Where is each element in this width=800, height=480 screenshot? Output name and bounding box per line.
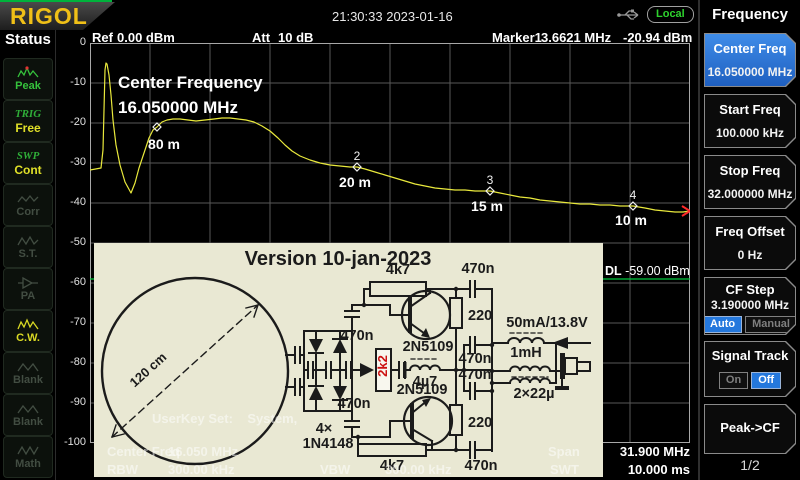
- blank-waveform-icon: [17, 360, 39, 373]
- st-waveform-icon: [17, 234, 39, 247]
- freq-offset-button[interactable]: Freq Offset 0 Hz: [704, 216, 796, 270]
- r220-bottom-label: 220: [468, 415, 492, 431]
- supply-label: 50mA/13.8V: [506, 315, 588, 331]
- status-title: Status: [5, 31, 51, 48]
- button-label: Freq Offset: [705, 217, 795, 239]
- cap-label-5: 470n: [458, 367, 491, 383]
- footer-cf-value: 16.050 MHz: [168, 444, 238, 459]
- cap-label-6: 470n: [464, 458, 497, 474]
- status-item-blank2: Blank: [3, 394, 53, 436]
- status-item-corr: Corr: [3, 184, 53, 226]
- status-item-cw: C.W.: [3, 310, 53, 352]
- svg-text:80 m: 80 m: [148, 136, 180, 152]
- center-freq-button[interactable]: Center Freq 16.050000 MHz: [704, 33, 796, 87]
- y-axis-tick: 0: [55, 36, 86, 48]
- cw-waveform-icon: [17, 318, 39, 331]
- peak-waveform-icon: [17, 66, 39, 79]
- top-green-strip: [0, 0, 112, 2]
- top-bar: RIGOL 21:30:33 2023-01-16 Local: [0, 0, 698, 30]
- y-axis-tick: -10: [55, 76, 86, 88]
- r220-top-label: 220: [468, 308, 492, 324]
- signal-track-on-toggle[interactable]: On: [719, 372, 748, 389]
- softkey-menu: Frequency Center Freq 16.050000 MHz Star…: [698, 0, 800, 480]
- button-label: Peak->CF: [705, 405, 795, 451]
- menu-page-indicator: 1/2: [700, 457, 800, 473]
- attenuation-value: 10 dB: [278, 30, 313, 45]
- cf-step-manual-toggle[interactable]: Manual: [745, 316, 797, 333]
- l22u-label: 2×22µ: [513, 386, 554, 402]
- status-item-sweep: SWP Cont: [3, 142, 53, 184]
- marker-readout-amp: -20.94 dBm: [623, 30, 692, 45]
- status-item-trigger: TRIG Free: [3, 100, 53, 142]
- menu-title: Frequency: [700, 6, 800, 23]
- status-sidebar: Status Peak TRIG Free SWP Cont Corr S.T.…: [0, 0, 56, 480]
- svg-text:15 m: 15 m: [471, 198, 503, 214]
- button-value: 16.050000 MHz: [705, 56, 795, 79]
- y-axis-tick: -60: [55, 276, 86, 288]
- peak-to-cf-button[interactable]: Peak->CF: [704, 404, 796, 454]
- status-item-label: Blank: [13, 416, 43, 428]
- status-item-peak: Peak: [3, 58, 53, 100]
- footer-span-label: Span: [548, 444, 580, 459]
- display-line-readout: DL -59.00 dBm: [605, 264, 690, 278]
- footer-span-value: 31.900 MHz: [608, 444, 690, 459]
- status-item-label: Cont: [14, 163, 41, 177]
- l4u7-label: 4µ7: [413, 374, 437, 390]
- transistor-top-label: 2N5109: [403, 339, 454, 355]
- corr-waveform-icon: [17, 192, 39, 205]
- button-label: Center Freq: [705, 34, 795, 56]
- signal-track-off-toggle[interactable]: Off: [751, 372, 781, 389]
- button-label: CF Step: [705, 278, 795, 297]
- footer-vbw-label: VBW: [320, 462, 350, 477]
- y-axis-tick: -70: [55, 316, 86, 328]
- footer-rbw-value: 300.00 kHz: [168, 462, 235, 477]
- circuit-schematic-overlay: Version 10-jan-2023 120 cm 470n 470n 470…: [94, 243, 603, 477]
- svg-text:3: 3: [487, 173, 494, 187]
- y-axis-tick: -30: [55, 156, 86, 168]
- diode-qty-label: 4×: [316, 421, 333, 437]
- start-freq-button[interactable]: Start Freq 100.000 kHz: [704, 94, 796, 148]
- cap-label-1: 470n: [340, 328, 373, 344]
- cap-label-3: 470n: [461, 261, 494, 277]
- signal-track-button[interactable]: Signal Track On Off: [704, 341, 796, 397]
- y-axis-tick: -20: [55, 116, 86, 128]
- button-label: Start Freq: [705, 95, 795, 117]
- attenuation-label: Att: [252, 30, 270, 45]
- y-axis-tick: -50: [55, 236, 86, 248]
- footer-vbw-value: 300.00 kHz: [385, 462, 452, 477]
- svg-text:4: 4: [630, 188, 637, 202]
- userkey-message: UserKey Set: System,: [152, 411, 297, 426]
- r2k2-label: 2k2: [375, 355, 390, 377]
- rigol-logo: RIGOL: [10, 3, 88, 30]
- diode-type-label: 1N4148: [303, 436, 354, 452]
- y-axis-tick: -100: [55, 436, 86, 448]
- cap-label-2: 470n: [337, 396, 370, 412]
- ref-level-label: Ref: [92, 30, 113, 45]
- trig-prefix: TRIG: [15, 108, 41, 120]
- status-item-label: Blank: [13, 374, 43, 386]
- status-item-math: Math: [3, 436, 53, 478]
- footer-swt-label: SWT: [550, 462, 579, 477]
- status-item-label: Corr: [16, 206, 39, 218]
- preamp-icon: [17, 276, 39, 289]
- button-value: 100.000 kHz: [705, 117, 795, 140]
- button-value: 3.190000 MHz: [705, 297, 795, 312]
- cf-step-auto-toggle[interactable]: Auto: [703, 316, 742, 333]
- button-value: 32.000000 MHz: [705, 178, 795, 201]
- status-item-label: C.W.: [16, 332, 40, 344]
- cf-step-button[interactable]: CF Step 3.190000 MHz Auto Manual: [704, 277, 796, 335]
- footer-rbw-label: RBW: [107, 462, 138, 477]
- status-item-pa: PA: [3, 268, 53, 310]
- r4k7-top-label: 4k7: [386, 262, 410, 278]
- stop-freq-button[interactable]: Stop Freq 32.000000 MHz: [704, 155, 796, 209]
- datetime-display: 21:30:33 2023-01-16: [332, 9, 453, 24]
- analyzer-screen: Status Peak TRIG Free SWP Cont Corr S.T.…: [0, 0, 800, 480]
- button-label: Signal Track: [705, 342, 795, 363]
- status-item-label: Peak: [15, 80, 41, 92]
- status-item-st: S.T.: [3, 226, 53, 268]
- status-item-label: S.T.: [19, 248, 38, 260]
- y-axis-tick: -80: [55, 356, 86, 368]
- y-axis-tick: -90: [55, 396, 86, 408]
- status-item-label: Math: [15, 458, 41, 470]
- cap-label-4: 470n: [458, 351, 491, 367]
- marker-readout-freq: 3.6621 MHz: [541, 30, 611, 45]
- status-item-blank1: Blank: [3, 352, 53, 394]
- marker-readout-label: Marker1: [492, 30, 542, 45]
- footer-swt-value: 10.000 ms: [608, 462, 690, 477]
- svg-text:2: 2: [354, 149, 361, 163]
- usb-icon: [616, 8, 642, 22]
- svg-text:10 m: 10 m: [615, 212, 647, 228]
- button-label: Stop Freq: [705, 156, 795, 178]
- logo-wedge: RIGOL: [0, 2, 130, 30]
- svg-text:20 m: 20 m: [339, 174, 371, 190]
- math-waveform-icon: [17, 444, 39, 457]
- status-item-label: PA: [21, 290, 35, 302]
- button-value: 0 Hz: [705, 239, 795, 262]
- status-item-label: Free: [15, 121, 40, 135]
- swp-prefix: SWP: [17, 150, 40, 162]
- y-axis-tick: -40: [55, 196, 86, 208]
- local-mode-badge: Local: [647, 6, 694, 23]
- l1mh-label: 1mH: [510, 345, 541, 361]
- ref-level-value: 0.00 dBm: [117, 30, 175, 45]
- center-freq-annotation: Center Frequency16.050000 MHz: [118, 70, 263, 120]
- blank-waveform-icon: [17, 402, 39, 415]
